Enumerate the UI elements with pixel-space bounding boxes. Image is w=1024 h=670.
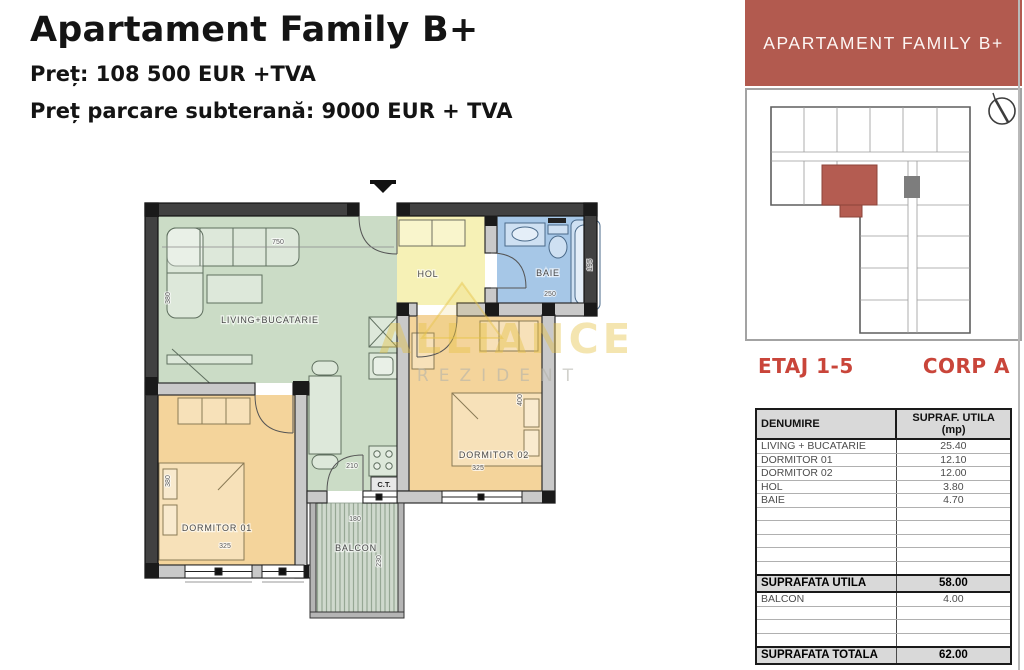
floor-plan: 750 380 380 325 325 400 210 250 195 180 … bbox=[122, 163, 627, 633]
apartment-sheet: Apartament Family B+ Preț: 108 500 EUR +… bbox=[0, 0, 1024, 670]
total-row: SUPRAFATA TOTALA62.00 bbox=[756, 647, 1011, 664]
table-row: DORMITOR 0112.10 bbox=[756, 453, 1011, 467]
site-plan-svg bbox=[747, 90, 1020, 339]
table-row-empty bbox=[756, 606, 1011, 620]
entrance-arrow-icon bbox=[370, 180, 396, 193]
table-row-empty bbox=[756, 521, 1011, 535]
floor-corp-row: ETAJ 1-5 CORP A bbox=[758, 354, 1010, 378]
table-row-empty bbox=[756, 633, 1011, 647]
apartment-banner: APARTAMENT FAMILY B+ bbox=[745, 0, 1022, 86]
svg-text:BAIE: BAIE bbox=[536, 268, 560, 278]
svg-text:180: 180 bbox=[349, 516, 361, 523]
floor-plan-svg: 750 380 380 325 325 400 210 250 195 180 … bbox=[122, 163, 627, 633]
balcon-row: BALCON4.00 bbox=[756, 592, 1011, 606]
apartment-banner-label: APARTAMENT FAMILY B+ bbox=[763, 33, 1004, 54]
areas-table: DENUMIRE SUPRAF. UTILA (mp) LIVING + BUC… bbox=[755, 408, 1012, 665]
svg-text:LIVING+BUCATARIE: LIVING+BUCATARIE bbox=[221, 315, 319, 325]
col-suprafata: SUPRAF. UTILA (mp) bbox=[896, 409, 1011, 439]
svg-text:325: 325 bbox=[219, 543, 231, 550]
table-row: DORMITOR 0212.00 bbox=[756, 467, 1011, 481]
table-row-empty bbox=[756, 561, 1011, 575]
table-row: BAIE4.70 bbox=[756, 494, 1011, 508]
svg-text:BALCON: BALCON bbox=[335, 543, 377, 553]
svg-text:250: 250 bbox=[544, 291, 556, 298]
svg-text:210: 210 bbox=[346, 463, 358, 470]
svg-text:750: 750 bbox=[272, 239, 284, 246]
table-row-empty bbox=[756, 507, 1011, 521]
svg-text:195: 195 bbox=[587, 259, 594, 271]
floor-label: ETAJ 1-5 bbox=[758, 354, 854, 378]
svg-text:325: 325 bbox=[472, 465, 484, 472]
table-row: LIVING + BUCATARIE25.40 bbox=[756, 439, 1011, 453]
parking-price-line: Preț parcare subterană: 9000 EUR + TVA bbox=[30, 99, 650, 123]
table-header-row: DENUMIRE SUPRAF. UTILA (mp) bbox=[756, 409, 1011, 439]
furniture-hol bbox=[399, 220, 465, 246]
svg-text:DORMITOR 01: DORMITOR 01 bbox=[182, 523, 252, 533]
header-block: Apartament Family B+ Preț: 108 500 EUR +… bbox=[30, 4, 650, 136]
sidebar: APARTAMENT FAMILY B+ bbox=[745, 0, 1022, 665]
svg-text:400: 400 bbox=[517, 394, 524, 406]
corp-label: CORP A bbox=[923, 354, 1010, 378]
col-denumire: DENUMIRE bbox=[756, 409, 896, 439]
svg-text:DORMITOR 02: DORMITOR 02 bbox=[459, 450, 529, 460]
ct-label: C.T. bbox=[377, 480, 390, 489]
svg-text:REZIDENT: REZIDENT bbox=[417, 366, 583, 386]
areas-table-wrap: DENUMIRE SUPRAF. UTILA (mp) LIVING + BUC… bbox=[755, 408, 1014, 665]
svg-text:HOL: HOL bbox=[418, 269, 439, 279]
svg-text:380: 380 bbox=[165, 292, 172, 304]
compass-icon bbox=[989, 93, 1015, 124]
table-row-empty bbox=[756, 534, 1011, 548]
table-row-empty bbox=[756, 548, 1011, 562]
table-row-empty bbox=[756, 620, 1011, 634]
page-title: Apartament Family B+ bbox=[30, 10, 650, 50]
svg-text:ALLIANCE: ALLIANCE bbox=[379, 315, 627, 363]
subtotal-row: SUPRAFATA UTILA58.00 bbox=[756, 575, 1011, 592]
site-plan-box bbox=[745, 88, 1022, 341]
table-row: HOL3.80 bbox=[756, 480, 1011, 494]
svg-text:230: 230 bbox=[376, 555, 383, 567]
right-edge-divider bbox=[1018, 0, 1020, 670]
svg-text:380: 380 bbox=[165, 475, 172, 487]
building-core bbox=[904, 176, 920, 198]
building-outline bbox=[771, 107, 970, 333]
price-line: Preț: 108 500 EUR +TVA bbox=[30, 62, 650, 86]
